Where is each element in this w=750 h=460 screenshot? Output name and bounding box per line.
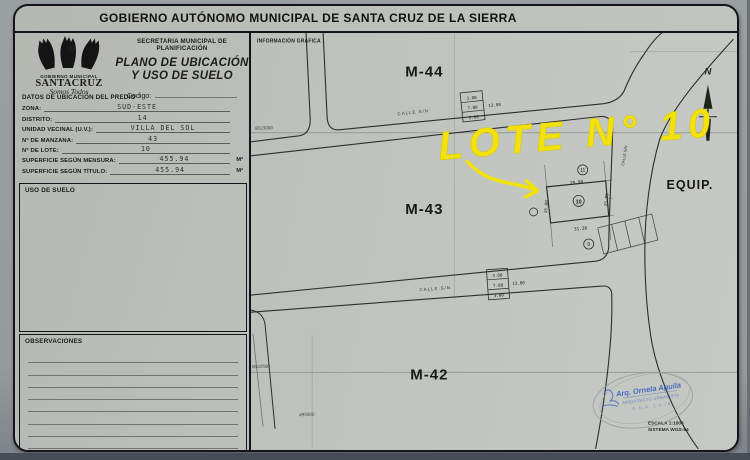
field-value: 10: [62, 145, 230, 154]
block-label-m44: M-44: [405, 64, 443, 81]
field-row-unidad-vecinal: UNIDAD VECINAL (U.V.): VILLA DEL SOL: [15, 123, 249, 133]
field-label: ZONA:: [22, 106, 41, 112]
field-label: SUPERFICIE SEGÚN TÍTULO:: [22, 169, 107, 175]
highlight-arrow-icon: [467, 162, 537, 197]
cadastral-map: 8023000 8022500 495500: [251, 33, 737, 450]
scanned-plan-sheet: GOBIERNO AUTÓNOMO MUNICIPAL DE SANTA CRU…: [13, 4, 739, 452]
cs-bot-3b: 3.00: [494, 292, 505, 298]
document-title: GOBIERNO AUTÓNOMO MUNICIPAL DE SANTA CRU…: [15, 11, 601, 25]
field-row-superficie-mensura: SUPERFICIE SEGÚN MENSURA: 455.94 M²: [15, 154, 249, 164]
street-label-bottom: CALLE S/N: [419, 285, 451, 292]
field-unit: M²: [230, 156, 243, 164]
cs-top-7: 7.00: [467, 104, 478, 110]
lote-highlight-text: LOTE N° 10: [436, 101, 718, 169]
lot-10-detail: 29.98 31.20 15.00 15.05 11 10 9: [530, 161, 614, 249]
secretaria-label: SECRETARIA MUNICIPAL DE PLANIFICACIÓN: [115, 38, 249, 52]
cs-top-3: 3.00: [466, 95, 477, 101]
neighbor-lot-9-label: 9: [587, 242, 590, 248]
field-label: N° DE MANZANA:: [22, 138, 73, 144]
field-value: SUD-ESTE: [44, 103, 230, 112]
uso-de-suelo-box: USO DE SUELO: [19, 183, 247, 332]
datos-section-header: DATOS DE UBICACIÓN DEL PREDIO: [22, 94, 135, 101]
hands-logo-icon: [32, 36, 106, 70]
field-label: UNIDAD VECINAL (U.V.):: [22, 127, 93, 133]
scan-edge-band: [0, 453, 750, 460]
municipal-logo: GOBIERNO MUNICIPAL SANTACRUZ Somos Todos: [15, 35, 115, 93]
map-panel: 8023000 8022500 495500: [251, 33, 737, 450]
property-fields: ZONA: SUD-ESTE DISTRITO: 14 UNIDAD VECIN…: [15, 102, 249, 175]
street-label-top: CALLE S/N: [397, 108, 429, 116]
datum-label: SISTEMA WGS-84: [648, 427, 689, 433]
field-row-zona: ZONA: SUD-ESTE: [15, 102, 249, 112]
field-row-manzana: N° DE MANZANA: 43: [15, 133, 249, 143]
north-label: N: [705, 67, 713, 78]
data-panel: GOBIERNO MUNICIPAL SANTACRUZ Somos Todos…: [15, 33, 251, 450]
cs-bot-7: 7.00: [493, 282, 504, 288]
field-label: SUPERFICIE SEGÚN MENSURA:: [22, 158, 116, 164]
cs-bot-total: 13.00: [512, 280, 525, 286]
codigo-blank-field: [155, 90, 237, 98]
plan-title-line1: PLANO DE UBICACIÓN: [115, 57, 249, 70]
uso-de-suelo-header: USO DE SUELO: [25, 187, 246, 194]
field-label: DISTRITO:: [22, 117, 52, 123]
lot-bottom-dimension: 31.20: [574, 225, 588, 232]
field-row-distrito: DISTRITO: 14: [15, 112, 249, 122]
cs-top-total: 13.00: [488, 102, 502, 108]
observaciones-box: OBSERVACIONES: [19, 334, 247, 452]
block-label-m42: M-42: [410, 366, 448, 383]
informacion-grafica-label: INFORMACIÓN GRAFICA: [257, 37, 321, 45]
grid-label-north2: 8022500: [252, 364, 270, 370]
plan-title-line2: Y USO DE SUELO: [115, 70, 249, 83]
field-row-lote: N° DE LOTE: 10: [15, 144, 249, 154]
field-row-superficie-titulo: SUPERFICIE SEGÚN TÍTULO: 455.94 M²: [15, 164, 249, 174]
document-header: GOBIERNO AUTÓNOMO MUNICIPAL DE SANTA CRU…: [15, 6, 737, 33]
cross-section-bottom: 3.00 7.00 3.00 13.00: [486, 267, 526, 300]
block-label-equip: EQUIP.: [666, 178, 713, 192]
field-value: VILLA DEL SOL: [96, 124, 230, 133]
grid-label-north1: 8023000: [255, 125, 273, 131]
field-value: 455.94: [119, 155, 230, 164]
field-value: 14: [55, 114, 230, 123]
block-label-m43: M-43: [405, 201, 443, 218]
scale-label: ESCALA 1:1500: [648, 420, 684, 426]
grid-label-east1: 495500: [299, 412, 315, 418]
small-lot-strip: [598, 214, 658, 254]
observaciones-header: OBSERVACIONES: [25, 338, 246, 345]
lot-10-number: 10: [576, 199, 582, 205]
field-value: 455.94: [110, 166, 230, 175]
field-value: 43: [76, 135, 230, 144]
observaciones-ruled-lines: [28, 351, 238, 449]
field-unit: M²: [230, 167, 243, 175]
cs-bot-3: 3.00: [492, 272, 503, 278]
lot-top-dimension: 29.98: [570, 179, 584, 186]
cs-top-3b: 3.00: [468, 114, 479, 120]
neighbor-lot-11-label: 11: [580, 168, 585, 174]
title-block: GOBIERNO MUNICIPAL SANTACRUZ Somos Todos…: [15, 35, 249, 93]
field-label: N° DE LOTE:: [22, 148, 59, 154]
